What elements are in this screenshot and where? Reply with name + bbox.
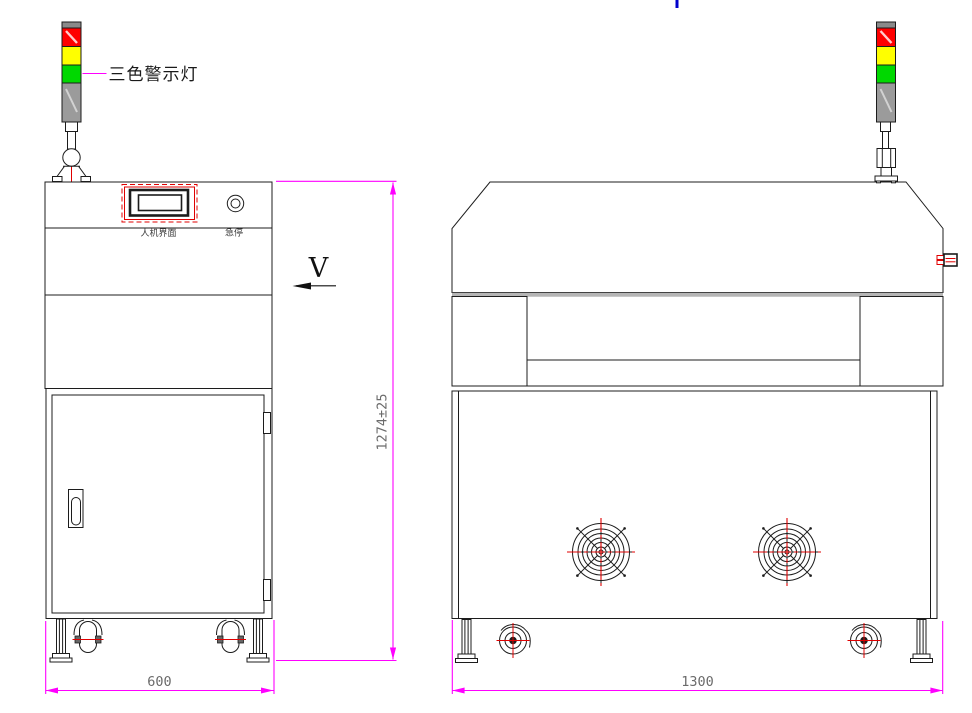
signal-lamp-stack <box>62 22 81 122</box>
machine-upper-body <box>45 182 272 389</box>
screen-display[interactable] <box>139 195 182 211</box>
connector-fitting <box>937 254 957 266</box>
machine-hood <box>452 182 943 293</box>
door-handle[interactable] <box>69 490 84 528</box>
hmi-label: 人机界面 <box>140 227 176 239</box>
tower-stem <box>881 122 891 132</box>
left-pillar <box>452 297 527 387</box>
signal-lamp-stack <box>877 22 896 122</box>
tower-label: 三色警示灯 <box>109 65 199 85</box>
signal-tower-right <box>875 22 898 183</box>
tower-mount-flange <box>875 176 898 181</box>
tower-ball-joint <box>63 149 80 166</box>
fan-grille <box>567 518 635 586</box>
door-hinge <box>264 580 271 601</box>
tower-mount-block <box>877 149 896 168</box>
front-lower-cabinet <box>452 391 937 619</box>
drawing-svg: 三色警示灯 人机界面 急停 <box>0 0 972 713</box>
estop-button[interactable] <box>227 195 243 211</box>
view-direction-letter: V <box>308 253 329 284</box>
dim-side-width-text: 600 <box>147 674 171 690</box>
blue-mark <box>676 0 679 8</box>
right-pillar <box>860 297 943 387</box>
machine-technical-drawing: 三色警示灯 人机界面 急停 <box>0 0 972 713</box>
dim-height-text: 1274±25 <box>375 394 391 451</box>
door-hinge <box>264 413 271 434</box>
dim-front-width-text: 1300 <box>681 674 714 690</box>
estop-label: 急停 <box>225 227 243 239</box>
tower-stem <box>66 122 78 132</box>
fan-grille <box>753 518 821 586</box>
